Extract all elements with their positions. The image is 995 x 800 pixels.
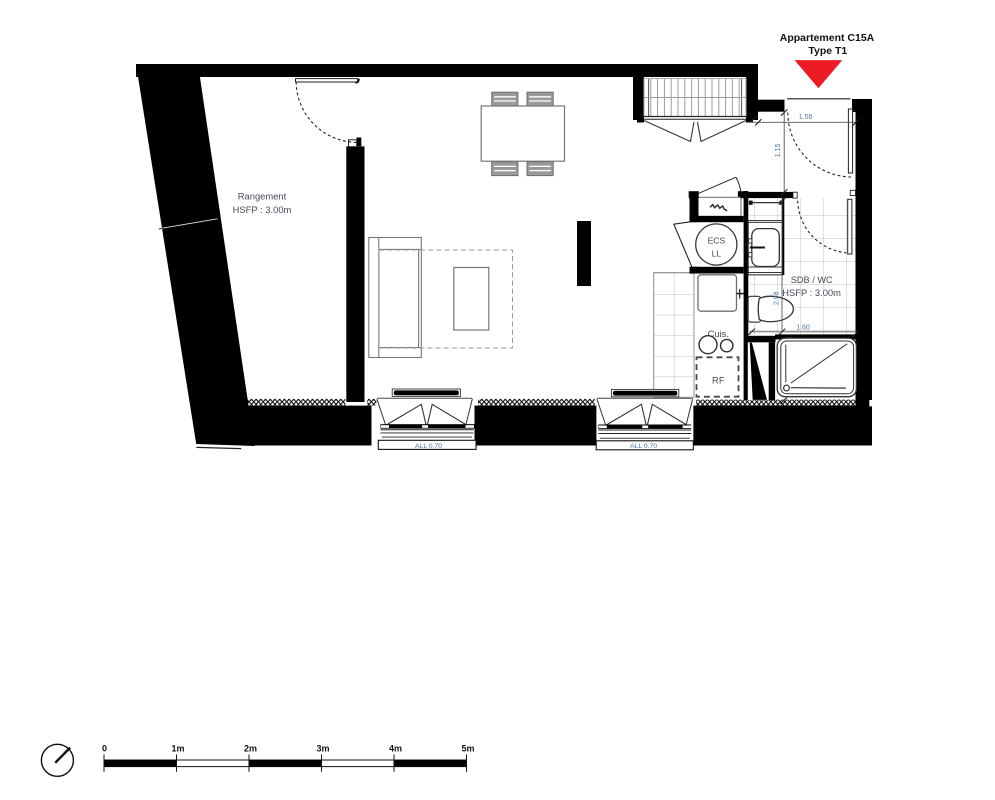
svg-text:ALL 0.70: ALL 0.70 xyxy=(630,443,657,450)
svg-text:4m: 4m xyxy=(389,744,402,754)
svg-text:LL: LL xyxy=(712,249,722,259)
svg-text:1.56: 1.56 xyxy=(799,114,813,121)
svg-text:3m: 3m xyxy=(316,744,329,754)
svg-text:HSFP : 3.00m: HSFP : 3.00m xyxy=(233,204,292,215)
svg-text:2.98: 2.98 xyxy=(774,291,781,305)
svg-text:ALL 0.70: ALL 0.70 xyxy=(415,443,442,450)
svg-text:1.15: 1.15 xyxy=(775,143,782,157)
svg-text:1.60: 1.60 xyxy=(796,324,810,331)
svg-text:2m: 2m xyxy=(244,744,257,754)
svg-text:5m: 5m xyxy=(461,744,474,754)
svg-text:Rangement: Rangement xyxy=(238,191,287,202)
svg-text:0: 0 xyxy=(102,744,107,754)
svg-text:HSFP : 3.00m: HSFP : 3.00m xyxy=(782,287,841,298)
svg-text:1m: 1m xyxy=(171,744,184,754)
svg-text:SDB / WC: SDB / WC xyxy=(791,275,833,285)
svg-text:RF: RF xyxy=(712,374,725,385)
svg-text:Type T1: Type T1 xyxy=(808,45,847,57)
svg-text:ECS: ECS xyxy=(708,235,726,245)
svg-text:Appartement C15A: Appartement C15A xyxy=(780,32,875,44)
